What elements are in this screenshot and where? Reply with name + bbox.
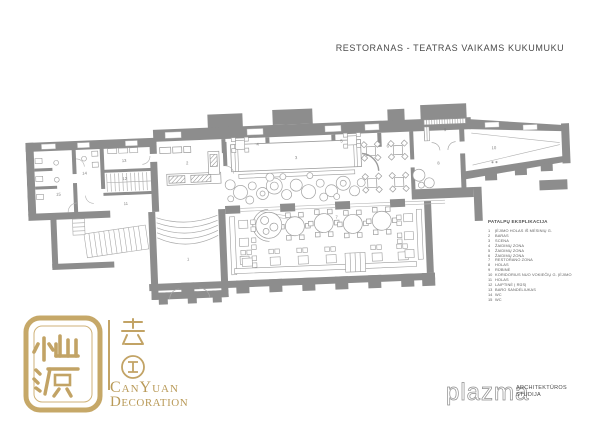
plazma-subtitle: ARCHITEKTŪROS STUDIJA <box>516 385 567 398</box>
stairs-lower <box>84 225 149 258</box>
dining-tables <box>279 207 398 241</box>
canyuan-wordmark: CanYuan Decoration <box>110 380 188 409</box>
canyuan-side-chars-icon <box>116 318 150 382</box>
legend-heading: PATALPŲ EKSPLIKACIJA <box>488 219 596 224</box>
stairs-upper <box>107 172 152 192</box>
plazma-logo: plazma ARCHITEKTŪROS STUDIJA <box>444 377 594 409</box>
legend-room-number: 15 <box>488 298 495 303</box>
room-marker: 1 <box>187 256 190 261</box>
room-marker: 10 <box>491 145 497 150</box>
corner-booth <box>252 209 282 242</box>
room-marker: 12 <box>122 176 128 181</box>
plazma-sub-line2: STUDIJA <box>516 392 567 399</box>
hall-poufs <box>413 169 435 189</box>
wc-fixtures <box>35 147 140 199</box>
sheet: RESTORANAS - TEATRAS VAIKAMS KUKUMUKU <box>0 0 600 424</box>
plazma-sub-line1: ARCHITEKTŪROS <box>516 385 567 392</box>
legend-items: 1 ĮĖJIMO HOLAS IŠ MĖSINIŲ G. 2 BARAS 3 S… <box>488 229 596 303</box>
canyuan-seal-icon <box>22 314 104 414</box>
room-marker: 2 <box>186 160 189 165</box>
canyuan-subname: Decoration <box>110 395 188 409</box>
canyuan-name: CanYuan <box>110 380 188 395</box>
bench-chairs <box>241 244 408 255</box>
stairs-small <box>72 219 85 235</box>
bar-counter <box>160 145 221 185</box>
room-marker: 7 <box>335 214 338 219</box>
room-marker: 8 <box>437 160 440 165</box>
canyuan-logo: CanYuan Decoration <box>20 312 220 420</box>
legend-row: 15 WC <box>488 298 596 303</box>
room-marker: 11 <box>124 201 129 206</box>
drawing-title: RESTORANAS - TEATRAS VAIKAMS KUKUMUKU <box>330 43 570 53</box>
zone6-tables <box>361 140 410 193</box>
room-legend: PATALPŲ EKSPLIKACIJA 1 ĮĖJIMO HOLAS IŠ M… <box>488 219 596 303</box>
legend-room-label: WC <box>495 298 596 303</box>
room-marker: 13 <box>122 158 128 163</box>
room-marker: 14 <box>82 171 88 176</box>
room-marker: 15 <box>56 192 62 197</box>
